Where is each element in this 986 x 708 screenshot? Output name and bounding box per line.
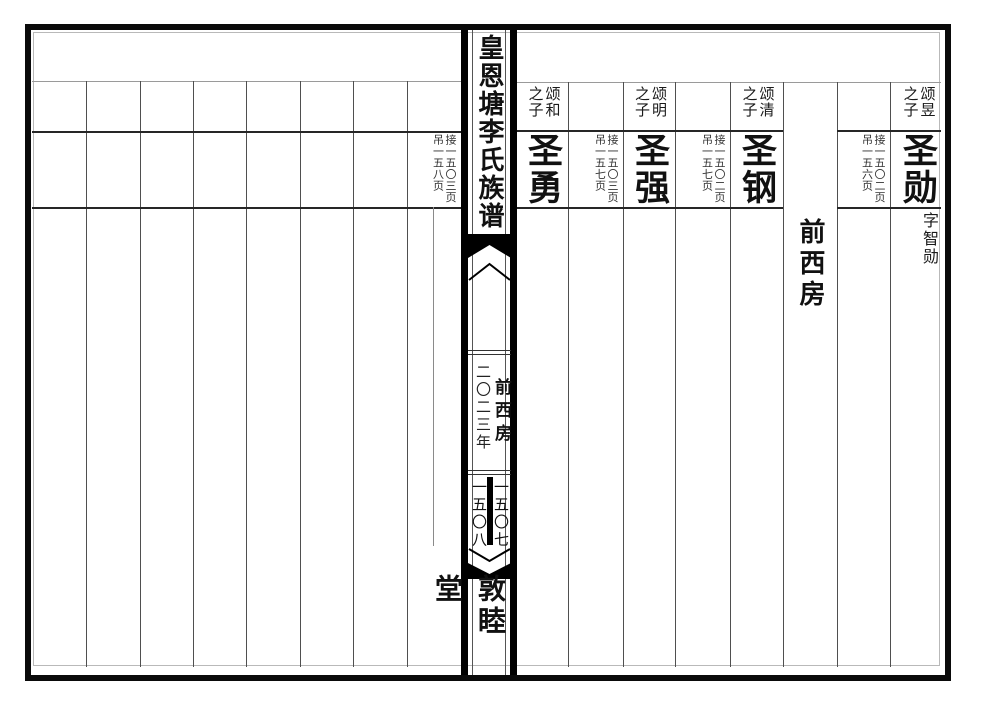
left-column-rule: [193, 81, 194, 667]
fishtail-top-icon: [468, 234, 511, 282]
branch-label: 前西房: [784, 218, 836, 318]
relation-label: 之子: [632, 86, 649, 118]
person-header-cell: 颂明 之子: [623, 84, 675, 128]
cross-ref-note: 吊一五八页: [431, 134, 444, 203]
parent-name: 颂清: [757, 86, 774, 118]
spine-branch-label: 前西房: [491, 362, 511, 470]
left-column-rule: [246, 81, 247, 667]
right-top-rule: [517, 82, 941, 83]
spine-divider: [468, 470, 511, 471]
person-header-cell: 颂昱 之子: [890, 84, 945, 128]
spine-divider: [468, 350, 511, 351]
courtesy-cell: 字智勋: [890, 212, 945, 272]
cross-ref-note: 吊一五七页: [593, 134, 606, 203]
annotation-cell: 接一五〇二页 吊一五七页: [675, 134, 730, 206]
relation-label: 之子: [901, 86, 918, 118]
page-number-left: 一五〇八: [470, 479, 485, 549]
spine-book-title: 皇恩塘李氏族谱: [468, 34, 511, 234]
person-name: 圣钢: [730, 132, 783, 206]
left-column-rule: [86, 81, 87, 667]
left-row-rule: [32, 207, 461, 209]
spine-right-bar: [510, 30, 517, 675]
continued-from-note: 接一五〇二页: [873, 134, 886, 203]
right-row-rule: [837, 207, 941, 209]
page-number-right: 一五〇七: [492, 479, 507, 549]
relation-label: 之子: [526, 86, 543, 118]
person-header-cell: 颂清 之子: [730, 84, 783, 128]
annotation-cell: 接一五〇二页 吊一五六页: [837, 134, 890, 206]
parent-name: 颂明: [649, 86, 666, 118]
left-column-rule: [300, 81, 301, 667]
relation-label: 之子: [740, 86, 757, 118]
left-row-rule: [32, 131, 461, 133]
person-name: 圣勋: [890, 132, 945, 206]
spine-hall-name: 敦睦堂: [468, 574, 511, 668]
genealogy-page: 接一五〇三页 吊一五八页 皇恩塘李氏族谱 前西房 二〇二三年 一五〇七 一五〇八…: [0, 0, 986, 708]
right-column-rule: [783, 82, 784, 667]
courtesy-name: 字智勋: [919, 212, 937, 266]
continued-from-note: 接一五〇三页: [444, 134, 457, 203]
person-name: 圣勇: [517, 132, 568, 206]
annotation-cell: 接一五〇三页 吊一五七页: [568, 134, 623, 206]
spine-divider: [468, 354, 511, 355]
parent-name: 颂昱: [918, 86, 935, 118]
right-row-rule: [517, 207, 783, 209]
left-column-rule: [353, 81, 354, 667]
parent-name: 颂和: [543, 86, 560, 118]
cross-ref-note: 吊一五七页: [700, 134, 713, 203]
cross-ref-note: 吊一五六页: [860, 134, 873, 203]
spine-mid-block: 前西房 二〇二三年: [468, 362, 513, 470]
annotation-cell: 接一五〇三页 吊一五八页: [407, 134, 461, 206]
continued-from-note: 接一五〇三页: [606, 134, 619, 203]
person-header-cell: 颂和 之子: [517, 84, 568, 128]
spine-divider: [468, 474, 511, 475]
continued-from-note: 接一五〇二页: [713, 134, 726, 203]
drop-line: [433, 207, 434, 546]
person-name: 圣强: [623, 132, 675, 206]
left-column-rule: [140, 81, 141, 667]
spine-year: 二〇二三年: [473, 362, 491, 470]
